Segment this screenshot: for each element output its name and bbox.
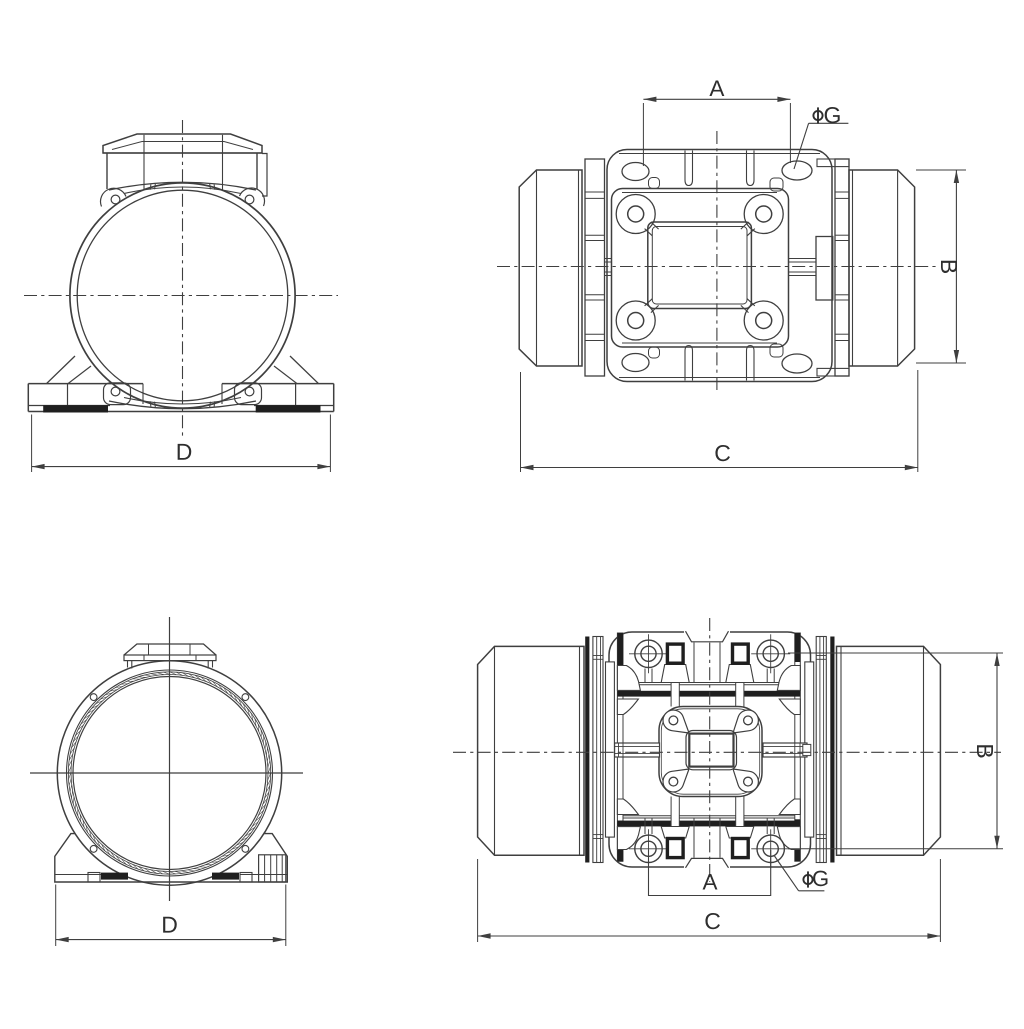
svg-text:G: G <box>812 866 829 891</box>
svg-text:G: G <box>824 102 842 128</box>
svg-text:C: C <box>714 440 731 466</box>
svg-text:A: A <box>709 76 724 101</box>
svg-text:D: D <box>161 912 178 938</box>
svg-text:B: B <box>972 743 998 758</box>
svg-text:C: C <box>704 908 721 934</box>
svg-text:D: D <box>176 439 193 465</box>
svg-text:B: B <box>936 259 962 274</box>
svg-text:A: A <box>702 869 717 894</box>
